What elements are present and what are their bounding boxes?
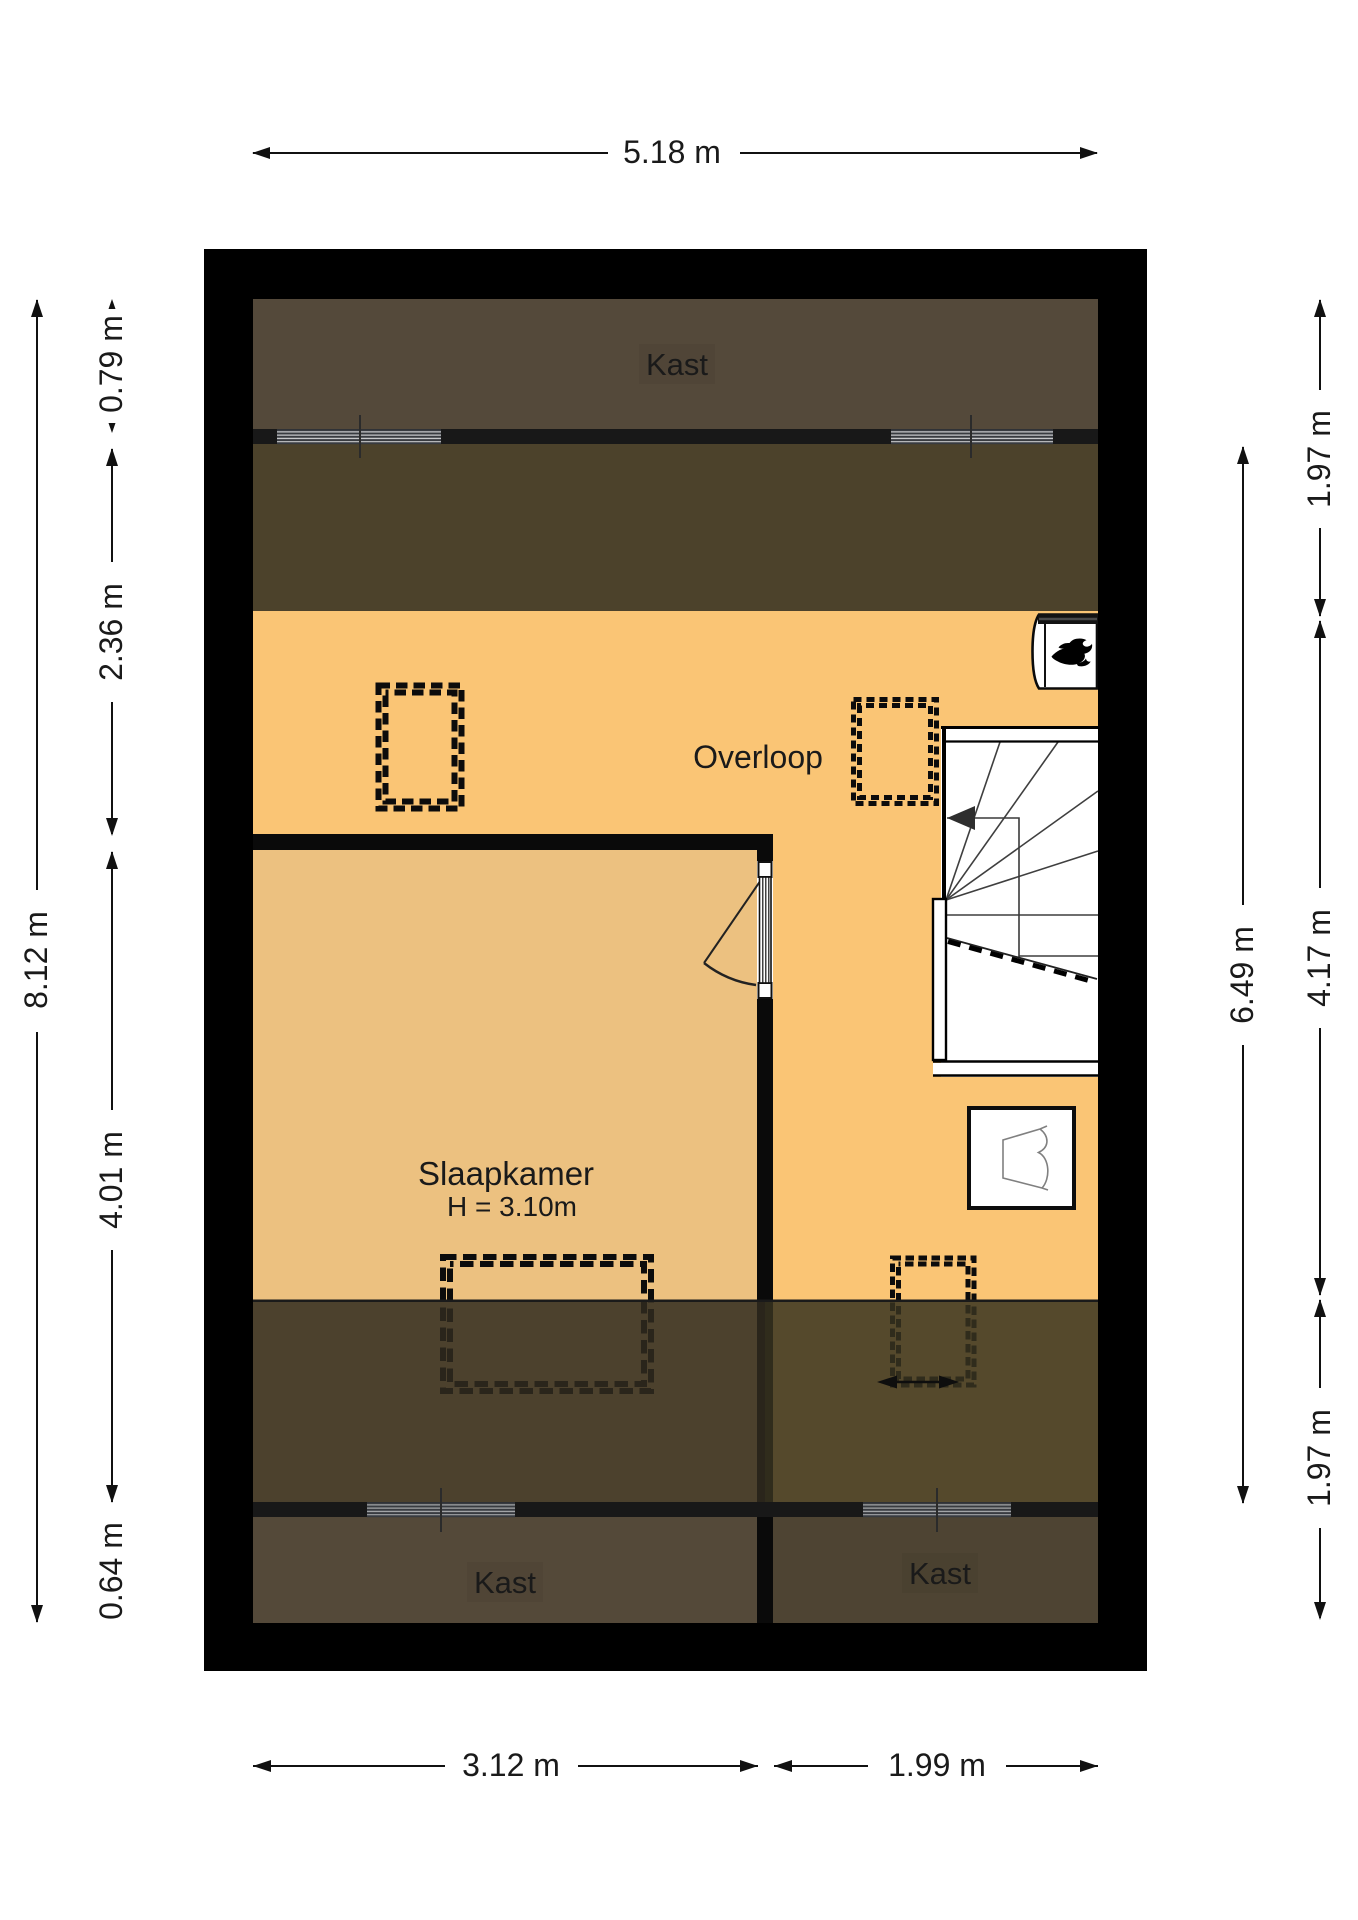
svg-text:1.97 m: 1.97 m (1301, 1409, 1337, 1507)
svg-text:1.99 m: 1.99 m (888, 1747, 986, 1783)
svg-text:0.64 m: 0.64 m (93, 1522, 129, 1620)
svg-text:8.12 m: 8.12 m (18, 911, 54, 1009)
svg-text:1.97 m: 1.97 m (1301, 410, 1337, 508)
svg-text:Slaapkamer: Slaapkamer (418, 1155, 594, 1192)
svg-text:H = 3.10m: H = 3.10m (447, 1191, 577, 1222)
svg-text:3.12 m: 3.12 m (462, 1747, 560, 1783)
svg-text:Kast: Kast (646, 347, 708, 382)
svg-text:4.17 m: 4.17 m (1301, 909, 1337, 1007)
svg-text:5.18 m: 5.18 m (623, 134, 721, 170)
svg-text:Kast: Kast (474, 1565, 536, 1600)
svg-text:4.01 m: 4.01 m (93, 1131, 129, 1229)
svg-text:0.79 m: 0.79 m (93, 315, 129, 413)
svg-text:2.36 m: 2.36 m (93, 583, 129, 681)
svg-text:Kast: Kast (909, 1556, 971, 1591)
svg-text:Overloop: Overloop (693, 739, 823, 775)
svg-text:6.49 m: 6.49 m (1224, 926, 1260, 1024)
